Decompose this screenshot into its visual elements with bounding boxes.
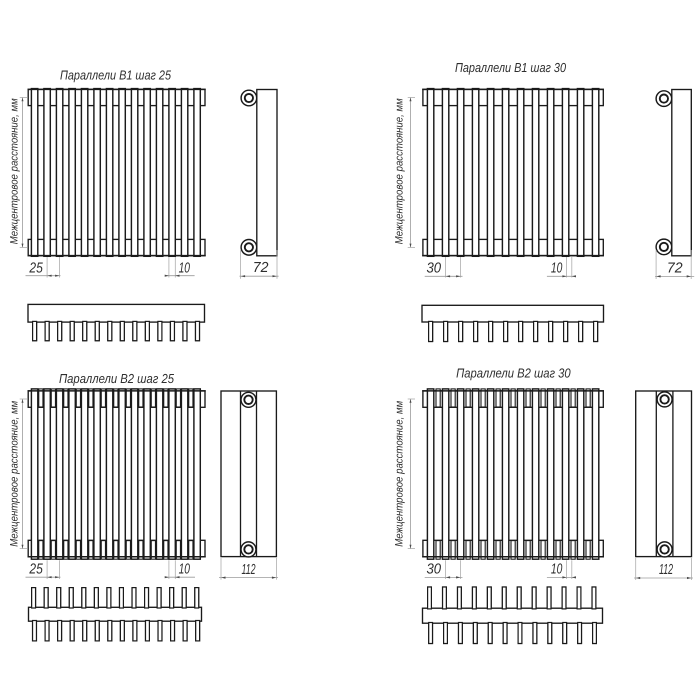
svg-text:112: 112 [241,562,255,578]
svg-text:Параллели В2 шаг 30: Параллели В2 шаг 30 [456,366,571,381]
svg-text:72: 72 [667,261,683,277]
svg-text:112: 112 [659,562,673,578]
svg-text:Межцентровое расстояние, мм: Межцентровое расстояние, мм [394,98,406,245]
svg-text:Межцентровое расстояние, мм: Межцентровое расстояние, мм [9,400,21,547]
svg-text:Параллели В1 шаг 30: Параллели В1 шаг 30 [455,60,567,75]
svg-text:30: 30 [427,261,442,277]
svg-text:10: 10 [179,260,190,276]
svg-text:Параллели В2 шаг 25: Параллели В2 шаг 25 [59,371,175,386]
svg-text:30: 30 [427,562,442,578]
svg-text:25: 25 [29,260,44,276]
svg-text:72: 72 [253,260,269,276]
svg-text:Межцентровое расстояние, мм: Межцентровое расстояние, мм [9,98,21,245]
svg-text:10: 10 [551,261,562,277]
svg-text:25: 25 [29,562,44,578]
svg-text:Параллели В1 шаг 25: Параллели В1 шаг 25 [60,67,172,82]
svg-text:10: 10 [551,562,562,578]
svg-text:10: 10 [179,562,190,578]
svg-text:Межцентровое расстояние, мм: Межцентровое расстояние, мм [394,400,406,547]
